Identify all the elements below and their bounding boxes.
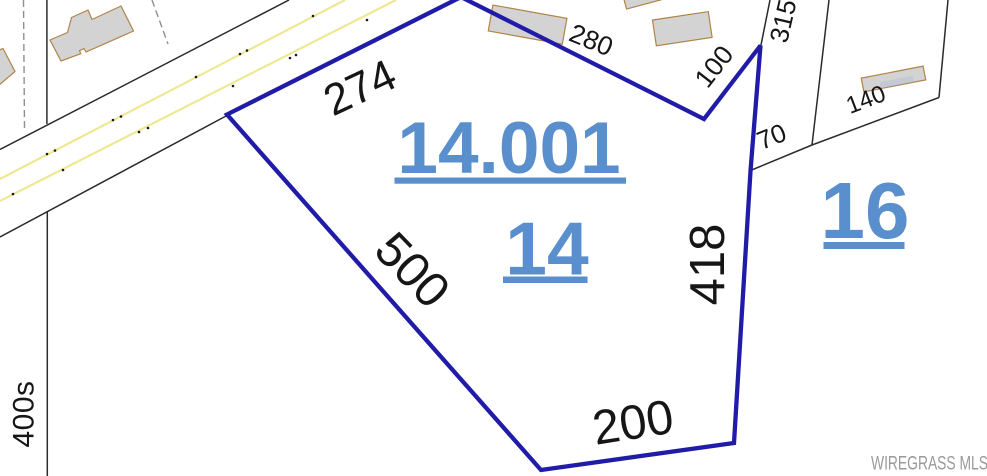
svg-text:418: 418	[681, 224, 735, 306]
svg-text:WIREGRASS MLS: WIREGRASS MLS	[871, 454, 987, 475]
svg-text:400s: 400s	[8, 380, 41, 447]
svg-text:16: 16	[821, 166, 910, 255]
svg-text:14.001: 14.001	[397, 108, 620, 189]
